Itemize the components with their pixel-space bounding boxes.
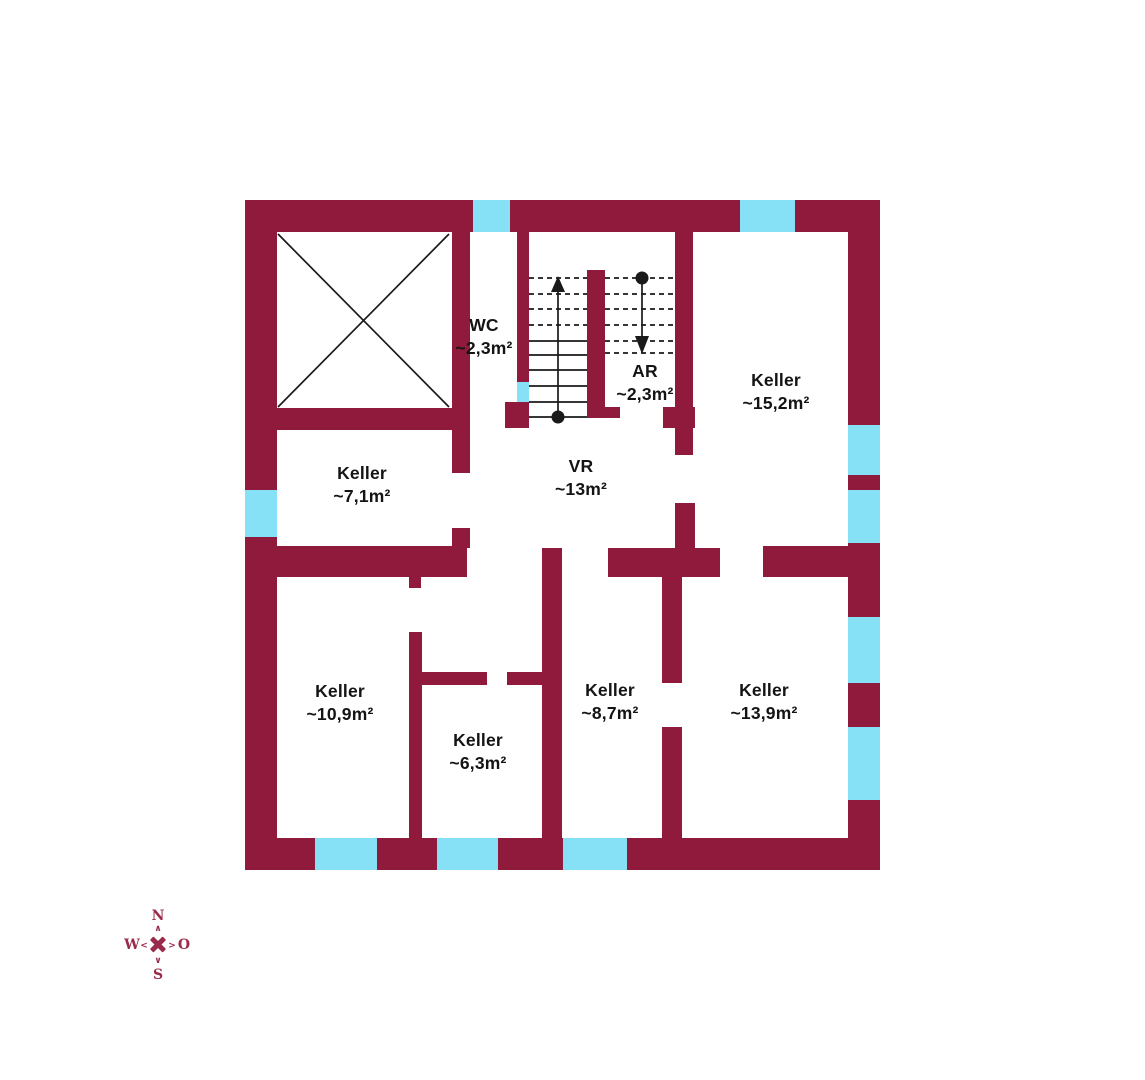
room-name: Keller [306, 680, 373, 703]
room-name: WC [455, 314, 512, 337]
room-label-keller-139: Keller ~13,9m² [730, 679, 797, 725]
room-label-ar: AR ~2,3m² [616, 360, 673, 406]
compass-south-label: S [153, 967, 163, 983]
floor-plan-canvas: WC ~2,3m² AR ~2,3m² Keller ~15,2m² Kelle… [0, 0, 1145, 1080]
room-label-keller-71: Keller ~7,1m² [333, 462, 390, 508]
room-label-keller-63: Keller ~6,3m² [449, 729, 506, 775]
room-area: ~10,9m² [306, 703, 373, 726]
room-area: ~13m² [555, 478, 607, 501]
room-area: ~13,9m² [730, 702, 797, 725]
room-area: ~8,7m² [581, 702, 638, 725]
compass-chevron-up-icon: ∧ [154, 924, 161, 934]
room-area: ~2,3m² [455, 337, 512, 360]
room-area: ~15,2m² [742, 392, 809, 415]
compass-north-label: N [152, 908, 165, 924]
compass-chevron-down-icon: ∨ [154, 956, 161, 966]
room-label-wc: WC ~2,3m² [455, 314, 512, 360]
room-area: ~6,3m² [449, 752, 506, 775]
compass-chevron-right-icon: > [168, 941, 176, 951]
room-label-vr: VR ~13m² [555, 455, 607, 501]
room-label-keller-152: Keller ~15,2m² [742, 369, 809, 415]
room-name: Keller [742, 369, 809, 392]
compass-chevron-left-icon: < [140, 941, 148, 951]
compass-east-label: O [178, 937, 190, 953]
room-name: Keller [333, 462, 390, 485]
room-label-keller-109: Keller ~10,9m² [306, 680, 373, 726]
room-label-keller-87: Keller ~8,7m² [581, 679, 638, 725]
room-area: ~2,3m² [616, 383, 673, 406]
compass-west-label: W [124, 937, 140, 953]
room-name: Keller [449, 729, 506, 752]
compass-rose: N S W O ∧ ∨ < > [123, 906, 193, 984]
room-area: ~7,1m² [333, 485, 390, 508]
room-name: Keller [581, 679, 638, 702]
room-name: AR [616, 360, 673, 383]
room-name: VR [555, 455, 607, 478]
room-name: Keller [730, 679, 797, 702]
